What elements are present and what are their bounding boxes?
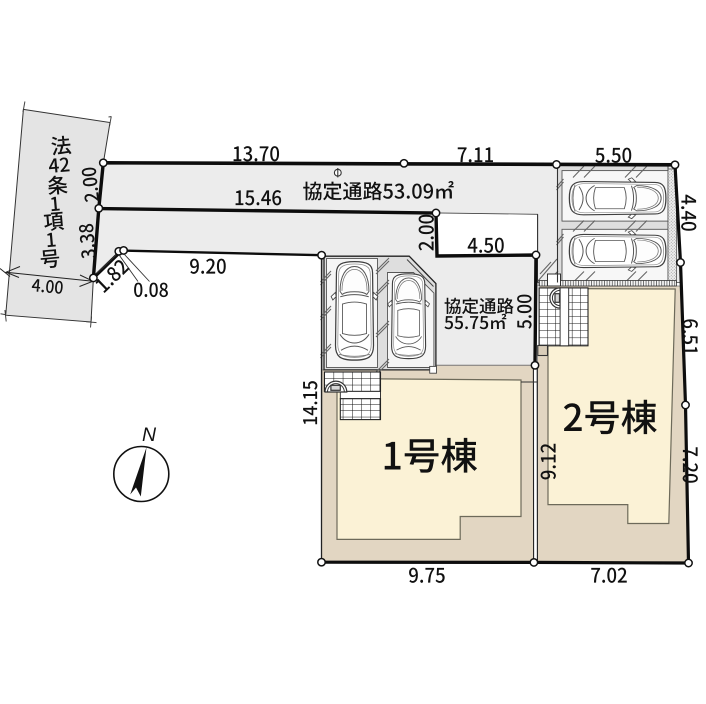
svg-text:N: N [142,424,157,446]
